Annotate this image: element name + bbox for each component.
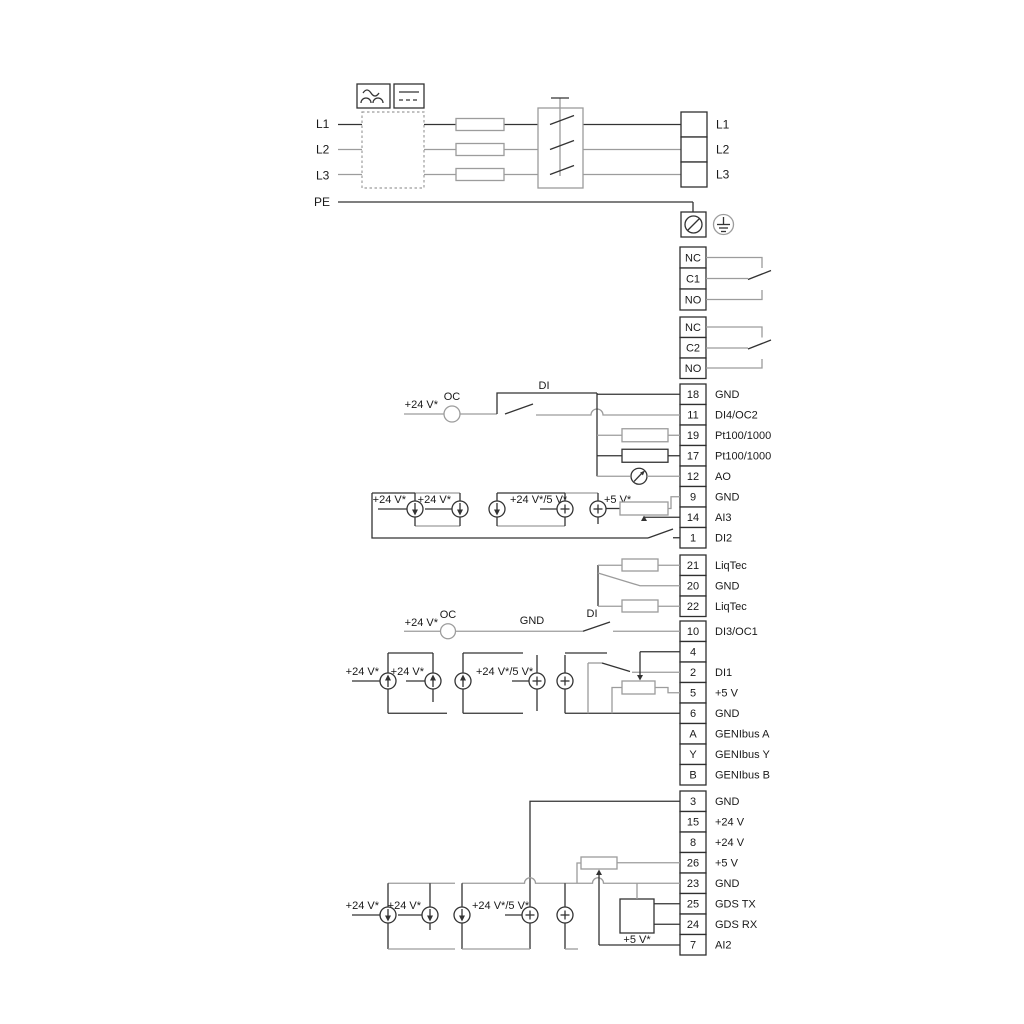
fuse-l1-icon xyxy=(456,119,504,131)
di2-switch-icon xyxy=(648,529,673,538)
open-collector-icon-2 xyxy=(441,624,456,639)
t11-num: 11 xyxy=(687,410,698,422)
terminal-strip-2: 10DI3/OC1 4 2DI1 5+5 V 6GND AGENIbus A Y… xyxy=(680,621,770,785)
di1-switch-icon xyxy=(602,663,630,672)
current-source-icon-a1 xyxy=(407,501,423,517)
t23-num: 23 xyxy=(687,878,699,890)
tY-label: GENIbus Y xyxy=(715,749,770,761)
t18-num: 18 xyxy=(687,389,699,401)
ai1-potentiometer-icon xyxy=(612,681,680,713)
t2-num: 2 xyxy=(690,667,696,679)
v24-label-7: +24 V* xyxy=(346,900,380,912)
relay-1-contact-icon xyxy=(706,258,771,300)
relay1-no: NO xyxy=(685,295,702,307)
t5-num: 5 xyxy=(690,688,696,700)
di4-switch-icon xyxy=(505,404,533,414)
t9-label: GND xyxy=(715,492,740,504)
v5-label-2: +5 V* xyxy=(623,934,651,946)
current-source-icon-c3 xyxy=(454,907,470,923)
t20-label: GND xyxy=(715,581,740,593)
t24-label: GDS RX xyxy=(715,919,758,931)
label-l1-in: L1 xyxy=(316,117,330,131)
t19-num: 19 xyxy=(687,430,699,442)
liqtec-resistor-2-icon xyxy=(622,600,658,612)
t21-label: LiqTec xyxy=(715,560,747,572)
voltage-source-icon-b4 xyxy=(529,673,545,689)
v24-label-3: +24 V* xyxy=(418,494,452,506)
relay-2-contact-icon xyxy=(706,327,771,368)
ao-meter-icon xyxy=(597,468,680,484)
pe-wire xyxy=(338,202,693,212)
t6-label: GND xyxy=(715,708,740,720)
fuse-l2-icon xyxy=(456,144,504,156)
t4-num: 4 xyxy=(690,647,696,659)
oc-label-2: OC xyxy=(440,609,457,621)
di-label-2: DI xyxy=(587,608,598,620)
label-pe-in: PE xyxy=(314,195,330,209)
voltage-source-icon-c5 xyxy=(557,907,573,923)
tA-num: A xyxy=(689,729,697,741)
t7-num: 7 xyxy=(690,940,696,952)
t17-label: Pt100/1000 xyxy=(715,451,771,463)
earth-ground-icon xyxy=(714,215,734,235)
relay2-c2: C2 xyxy=(686,343,700,355)
t14-label: AI3 xyxy=(715,512,732,524)
t10-num: 10 xyxy=(687,626,699,638)
label-l3-in: L3 xyxy=(316,169,330,183)
gnd-label-1: GND xyxy=(520,615,545,627)
t2-label: DI1 xyxy=(715,667,732,679)
label-l1-out: L1 xyxy=(716,118,730,132)
power-input-labels: L1 L2 L3 PE xyxy=(314,117,330,209)
current-source-icon-a2 xyxy=(452,501,468,517)
t7-label: AI2 xyxy=(715,940,732,952)
main-switch-icon xyxy=(538,98,583,188)
pe-terminal-icon xyxy=(681,212,706,237)
t15-label: +24 V xyxy=(715,817,745,829)
current-source-icon-b1 xyxy=(380,673,396,689)
relay-1-terminals: NC C1 NO xyxy=(680,247,706,310)
wiring-diagram: L1 L2 L3 PE L1 L2 L3 xyxy=(0,0,1024,1024)
t12-num: 12 xyxy=(687,471,699,483)
current-source-icon-a3 xyxy=(489,501,505,517)
t8-num: 8 xyxy=(690,837,696,849)
di-label-1: DI xyxy=(539,380,550,392)
t21-num: 21 xyxy=(687,560,699,572)
t11-label: DI4/OC2 xyxy=(715,410,758,422)
ac-symbol-icon xyxy=(357,84,390,108)
t26-label: +5 V xyxy=(715,858,739,870)
ai3-circuit: +24 V* +24 V* +24 V*/5 V* +5 V* xyxy=(372,493,680,538)
v24-label-2: +24 V* xyxy=(373,494,407,506)
v24-label-6: +24 V* xyxy=(391,666,425,678)
current-source-icon-c1 xyxy=(380,907,396,923)
t14-num: 14 xyxy=(687,512,699,524)
t12-label: AO xyxy=(715,471,731,483)
t6-num: 6 xyxy=(690,708,696,720)
v24-label-1: +24 V* xyxy=(405,399,439,411)
t19-label: Pt100/1000 xyxy=(715,430,771,442)
t1-label: DI2 xyxy=(715,533,732,545)
fuse-l3-icon xyxy=(456,169,504,181)
t1-num: 1 xyxy=(690,533,696,545)
label-l2-out: L2 xyxy=(716,143,730,157)
t3-label: GND xyxy=(715,796,740,808)
t22-label: LiqTec xyxy=(715,601,747,613)
ai2-gds-circuit: +24 V* +24 V* +24 V*/5 V* xyxy=(346,801,680,949)
voltage-source-icon-a4 xyxy=(557,501,573,517)
relay1-c1: C1 xyxy=(686,274,700,286)
ai1-circuit: +24 V* +24 V* +24 V*/5 V* xyxy=(346,652,680,714)
v24-5-label-2: +24 V*/5 V* xyxy=(476,666,534,678)
t5-label: +5 V xyxy=(715,688,739,700)
t10-label: DI3/OC1 xyxy=(715,626,758,638)
voltage-source-icon-c4 xyxy=(522,907,538,923)
oc-label-1: OC xyxy=(444,391,461,403)
dc-symbol-icon xyxy=(394,84,424,108)
terminal-strip-1: 18GND 11DI4/OC2 19Pt100/1000 17Pt100/100… xyxy=(680,384,771,548)
label-l2-in: L2 xyxy=(316,143,330,157)
liqtec-circuit xyxy=(598,559,680,612)
t23-label: GND xyxy=(715,878,740,890)
pt100-resistor-2-icon xyxy=(597,449,680,462)
di3-switch-icon xyxy=(583,622,610,631)
relay1-nc: NC xyxy=(685,253,701,265)
t22-num: 22 xyxy=(687,601,699,613)
tY-num: Y xyxy=(689,749,697,761)
t25-num: 25 xyxy=(687,899,699,911)
relay-2-terminals: NC C2 NO xyxy=(680,317,706,379)
gds-sensor-box: +5 V* xyxy=(620,883,680,946)
current-source-icon-b2 xyxy=(425,673,441,689)
tB-num: B xyxy=(689,770,696,782)
t8-label: +24 V xyxy=(715,837,745,849)
label-l3-out: L3 xyxy=(716,168,730,182)
power-input-wires xyxy=(338,125,681,175)
t20-num: 20 xyxy=(687,581,699,593)
open-collector-icon-1 xyxy=(444,406,460,422)
relay2-nc: NC xyxy=(685,322,701,334)
t18-label: GND xyxy=(715,389,740,401)
t9-num: 9 xyxy=(690,492,696,504)
current-source-icon-c2 xyxy=(422,907,438,923)
t15-num: 15 xyxy=(687,817,699,829)
tA-label: GENIbus A xyxy=(715,729,770,741)
tB-label: GENIbus B xyxy=(715,770,770,782)
current-source-icon-b3 xyxy=(455,673,471,689)
t3-num: 3 xyxy=(690,796,696,808)
terminal-strip-3: 3GND 15+24 V 8+24 V 26+5 V 23GND 25GDS T… xyxy=(680,791,758,955)
relay2-no: NO xyxy=(685,363,702,375)
t24-num: 24 xyxy=(687,919,699,931)
voltage-source-icon-b5 xyxy=(557,673,573,689)
liqtec-strip: 21LiqTec 20GND 22LiqTec xyxy=(680,555,747,617)
t25-label: GDS TX xyxy=(715,899,756,911)
pt100-resistor-1-icon xyxy=(597,429,680,442)
converter-dashed-box xyxy=(362,112,424,188)
v24-label-5: +24 V* xyxy=(346,666,380,678)
t17-num: 17 xyxy=(687,451,699,463)
v24-label-4: +24 V* xyxy=(405,617,439,629)
power-terminal-block: L1 L2 L3 xyxy=(681,112,730,187)
v24-5-label-3: +24 V*/5 V* xyxy=(472,900,530,912)
t26-num: 26 xyxy=(687,858,699,870)
liqtec-resistor-1-icon xyxy=(622,559,658,571)
